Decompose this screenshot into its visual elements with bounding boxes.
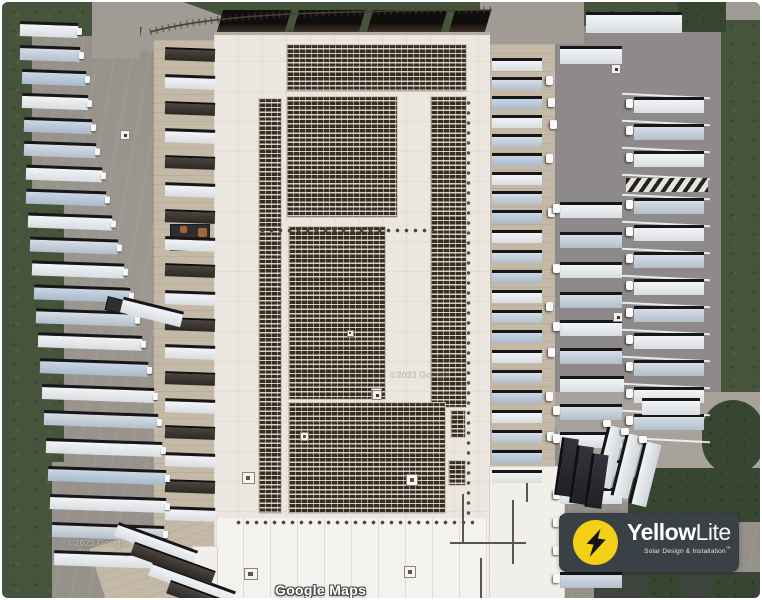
truck-cab-dot — [548, 348, 555, 357]
truck-cab-dot — [626, 362, 633, 371]
parked-trailer-row — [48, 466, 166, 485]
trademark-symbol: ™ — [726, 546, 731, 552]
truck-cab-dot — [553, 434, 560, 443]
parked-trailer-row — [20, 21, 78, 38]
parked-truck-east — [634, 414, 704, 430]
solar-panel-array — [258, 98, 282, 514]
lot-marker — [120, 130, 130, 140]
parked-truck-mid — [560, 232, 622, 248]
truck-cab-dot — [626, 227, 633, 236]
truck-cab-dot — [621, 428, 629, 435]
parked-truck-mid — [560, 202, 622, 218]
parked-trailer — [642, 398, 700, 415]
truck-cab-dot — [553, 406, 560, 415]
docked-trailer-west — [165, 155, 215, 170]
truck-cab-dot — [626, 126, 633, 135]
roof-pipe — [512, 500, 514, 564]
parked-trailer-row — [20, 45, 80, 62]
tree-canopy — [710, 576, 756, 600]
parked-truck-mid — [560, 320, 622, 336]
roof-parapet — [293, 10, 365, 32]
solar-panel-array — [286, 44, 467, 92]
docked-trailer-east — [492, 330, 542, 343]
google-maps-watermark[interactable]: Google Maps — [275, 582, 366, 598]
docked-trailer-east — [492, 96, 542, 109]
yellowlite-wordmark: YellowLite Solar Design & Installation™ — [627, 521, 731, 556]
docked-trailer-west — [165, 506, 215, 522]
docked-trailer-west — [165, 425, 215, 440]
truck-cab-dot — [626, 389, 633, 398]
rooftop-rust-equipment — [180, 226, 187, 233]
roof-hatch-box — [300, 432, 309, 441]
lot-marker — [613, 312, 623, 322]
parked-trailer-row — [28, 213, 112, 231]
parked-trailer-row — [26, 165, 102, 183]
docked-trailer-east — [492, 470, 542, 483]
public-road — [480, 2, 584, 44]
docked-trailer-east — [492, 134, 542, 147]
roof-pipe — [480, 558, 482, 600]
docked-trailer-east — [492, 115, 542, 128]
docked-trailer-east — [492, 77, 542, 90]
solar-panel-array — [288, 402, 446, 514]
solar-panel-array — [430, 96, 467, 408]
docked-trailer-east — [492, 450, 542, 463]
roof-parapet — [367, 10, 447, 32]
docked-trailer-east — [492, 191, 542, 204]
dock-apron — [489, 44, 555, 492]
truck-cab-dot — [626, 99, 633, 108]
roof-hatch-box — [404, 566, 416, 578]
truck-cab-dot — [548, 98, 555, 107]
parked-trailer-row — [24, 117, 92, 134]
truck-cab-dot — [603, 420, 611, 427]
truck-cab-dot — [546, 154, 553, 163]
docked-trailer-east — [492, 230, 542, 243]
truck-cab-dot — [550, 120, 557, 129]
parked-trailer-row — [30, 236, 118, 254]
grass — [720, 16, 762, 440]
roof-hatch-box — [347, 330, 354, 337]
docked-trailer-west — [165, 182, 215, 198]
docked-trailer-east — [492, 390, 542, 403]
docked-trailer-east — [492, 430, 542, 443]
docked-trailer-west — [165, 479, 215, 494]
truck-cab-dot — [546, 302, 553, 311]
parked-truck-mid — [560, 376, 624, 392]
tree-canopy — [646, 574, 682, 600]
docked-trailer-east — [492, 270, 542, 283]
parked-truck-mid — [560, 262, 622, 278]
parked-trailer-row — [26, 189, 106, 207]
parked-truck-mid — [560, 46, 622, 64]
docked-trailer-west — [165, 371, 215, 386]
truck-cab-dot — [626, 153, 633, 162]
truck-cab-dot — [553, 264, 560, 273]
roof-hatch-box — [406, 474, 418, 486]
parked-trailer-row — [22, 93, 88, 110]
truck-cab-dot — [553, 322, 560, 331]
lightning-bolt-icon — [573, 520, 618, 565]
brand-name-bold: Yellow — [627, 519, 696, 545]
parked-truck-east — [634, 97, 704, 113]
truck-cab-dot — [553, 204, 560, 213]
truck-cab-dot — [639, 436, 647, 443]
truck-cab-dot — [546, 392, 553, 401]
roof-conduit — [258, 228, 434, 233]
truck-cab-dot — [553, 574, 560, 583]
docked-trailer-west — [165, 236, 215, 252]
docked-trailer-west — [165, 452, 215, 468]
truck-cab-dot — [626, 308, 633, 317]
docked-trailer-east — [492, 153, 542, 166]
satellite-map-canvas[interactable]: ©2023 Google ©2023 Google Google Maps Ye… — [0, 0, 762, 600]
solar-panel-array — [288, 226, 386, 400]
no-parking-hatch — [626, 178, 708, 192]
copyright-watermark: ©2023 Google — [68, 538, 128, 548]
parked-truck-east — [634, 124, 704, 140]
docked-trailer-west — [165, 209, 215, 224]
lot-marker — [611, 64, 621, 74]
roof-conduit-vertical — [466, 98, 471, 516]
parked-truck-mid — [560, 404, 622, 420]
parked-trailer-row — [32, 260, 124, 278]
parked-truck-east — [634, 151, 704, 167]
parked-truck-mid — [560, 348, 622, 364]
truck-cab-dot — [626, 335, 633, 344]
truck-cab-dot — [626, 254, 633, 263]
docked-trailer-east — [492, 172, 542, 185]
docked-trailer-west — [165, 398, 215, 414]
roof-pipe — [462, 494, 464, 544]
parked-truck-east — [634, 252, 704, 268]
solar-panel-array — [286, 96, 398, 218]
docked-trailer-west — [165, 74, 215, 90]
truck-cab-dot — [546, 76, 553, 85]
parked-trailer-row — [50, 494, 166, 513]
truck-cab-dot — [626, 281, 633, 290]
grass — [2, 442, 52, 600]
roof-parapet — [217, 10, 291, 32]
lot-marker — [372, 390, 382, 400]
solar-panel-array — [448, 460, 466, 486]
docked-trailer-east — [492, 58, 542, 71]
parked-truck-east — [634, 333, 704, 349]
docked-trailer-west — [165, 101, 215, 116]
docked-trailer-east — [492, 350, 542, 363]
docked-trailer-west — [165, 128, 215, 144]
parked-truck-east — [634, 306, 704, 322]
roof-edge-shadow — [214, 32, 490, 35]
docked-trailer-west — [165, 263, 215, 278]
brand-name-light: Lite — [696, 519, 731, 545]
solar-panel-array — [450, 410, 466, 438]
grass-island — [678, 2, 726, 32]
copyright-watermark: ©2023 Google — [390, 370, 450, 380]
parked-trailer-row — [24, 141, 96, 159]
roof-hatch-box — [242, 472, 255, 484]
parked-truck-east — [634, 198, 704, 214]
docked-trailer-east — [492, 370, 542, 383]
brand-tagline: Solar Design & Installation — [644, 548, 726, 555]
docked-trailer-east — [492, 410, 542, 423]
docked-trailer-east — [492, 310, 542, 323]
parked-truck-mid — [586, 12, 682, 33]
roof-hatch-box — [244, 568, 258, 580]
parked-truck-mid — [560, 292, 622, 308]
docked-trailer-west — [165, 290, 215, 306]
roof-conduit — [234, 520, 474, 525]
parked-truck-mid — [560, 572, 622, 588]
docked-trailer-east — [492, 290, 542, 303]
docked-trailer-east — [492, 250, 542, 263]
yellowlite-logo-watermark: YellowLite Solar Design & Installation™ — [559, 513, 739, 572]
truck-cab-dot — [626, 416, 633, 425]
docked-trailer-west — [165, 344, 215, 360]
roof-parapet — [449, 10, 491, 32]
truck-cab-dot — [626, 200, 633, 209]
docked-trailer-west — [165, 47, 215, 62]
parked-truck-east — [634, 225, 704, 241]
docked-trailer-east — [492, 210, 542, 223]
parked-truck-east — [634, 360, 704, 376]
rooftop-rust-equipment — [198, 228, 207, 237]
parked-truck-east — [634, 279, 704, 295]
grass-island — [702, 400, 762, 474]
parked-trailer-row — [22, 69, 86, 86]
